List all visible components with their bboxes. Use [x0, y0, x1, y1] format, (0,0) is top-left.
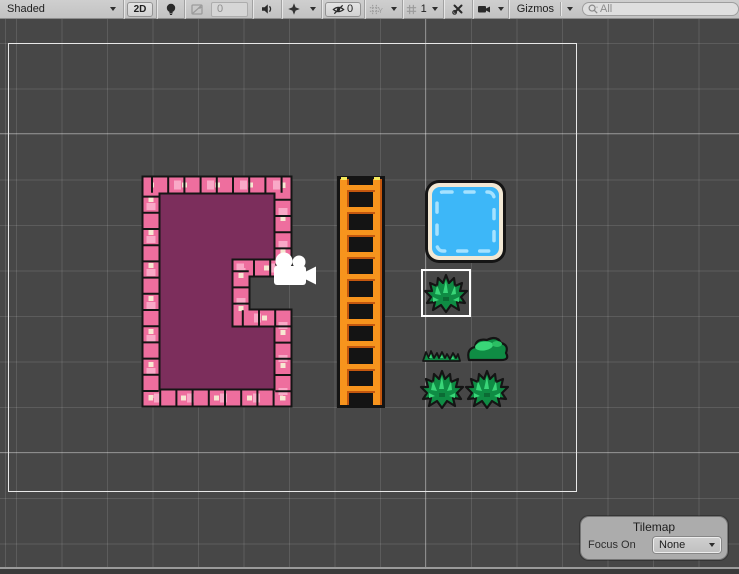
audio-icon: [260, 2, 274, 16]
focus-on-dropdown[interactable]: None: [653, 537, 721, 553]
chevron-down-icon: [391, 7, 397, 11]
lightbulb-icon: [164, 2, 178, 16]
camera-gizmo-icon[interactable]: [274, 253, 316, 286]
chevron-down-icon: [498, 7, 504, 11]
toolbar-separator: [560, 2, 561, 16]
grid-axis-button[interactable]: Y: [365, 3, 387, 16]
gizmos-dropdown[interactable]: Gizmos: [509, 0, 577, 19]
mound-bush-sprite[interactable]: [468, 338, 507, 360]
effects-icon: [287, 2, 301, 16]
grid-axis-dropdown[interactable]: [387, 7, 402, 11]
search-icon: [587, 3, 600, 16]
shading-mode-dropdown[interactable]: Shaded: [0, 0, 123, 19]
scene-sprites-layer: [0, 0, 739, 574]
chevron-down-icon: [567, 7, 573, 11]
exposure-button[interactable]: [185, 2, 209, 16]
tilemap-focus-row: Focus On None: [581, 534, 727, 553]
tilemap-overlay-panel: Tilemap Focus On None: [580, 516, 728, 560]
tools-icon: [451, 2, 465, 16]
spiky-bush-sprite[interactable]: [421, 371, 463, 408]
ladder-sprite[interactable]: [337, 176, 385, 408]
scene-effects-button[interactable]: [282, 2, 306, 16]
gizmos-label: Gizmos: [517, 3, 554, 15]
shading-mode-label: Shaded: [7, 3, 45, 15]
scene-camera-dropdown[interactable]: [495, 7, 508, 11]
scene-lighting-button[interactable]: [157, 2, 184, 16]
dungeon-room-tilemap[interactable]: [151, 185, 283, 398]
scene-search-box[interactable]: [582, 2, 739, 16]
chevron-down-icon: [110, 7, 116, 11]
grid-opacity-icon: [405, 3, 418, 16]
toolbar-separator: [321, 0, 322, 19]
2d-mode-button[interactable]: 2D: [127, 2, 153, 17]
toolbar-separator: [123, 0, 124, 19]
grid-opacity-button[interactable]: [403, 3, 421, 16]
tilemap-panel-title: Tilemap: [581, 517, 727, 534]
grass-tuft-sprite[interactable]: [423, 351, 460, 361]
exposure-icon: [190, 2, 204, 16]
scene-view-toolbar: Shaded 2D 0: [0, 0, 739, 19]
spiky-bush-sprite[interactable]: [466, 371, 508, 408]
unity-scene-view-window: Shaded 2D 0: [0, 0, 739, 574]
camera-icon: [477, 2, 491, 16]
hidden-objects-button[interactable]: 0: [325, 2, 361, 17]
scene-viewport[interactable]: [0, 0, 739, 574]
scene-effects-dropdown[interactable]: [306, 7, 321, 11]
chevron-down-icon: [709, 543, 715, 547]
focus-on-value: None: [659, 539, 705, 551]
chevron-down-icon: [432, 7, 438, 11]
search-input[interactable]: [600, 3, 732, 15]
component-tools-button[interactable]: [444, 2, 472, 16]
chevron-down-icon: [310, 7, 316, 11]
selected-bush-tile[interactable]: [422, 270, 470, 316]
scene-audio-button[interactable]: [253, 2, 281, 16]
focus-on-label: Focus On: [588, 539, 636, 551]
water-tile-sprite[interactable]: [425, 180, 506, 263]
scene-camera-button[interactable]: [473, 2, 495, 16]
exposure-value-field[interactable]: 0: [211, 2, 248, 17]
grid-opacity-dropdown[interactable]: [427, 7, 443, 11]
eye-slash-icon: [332, 3, 345, 16]
